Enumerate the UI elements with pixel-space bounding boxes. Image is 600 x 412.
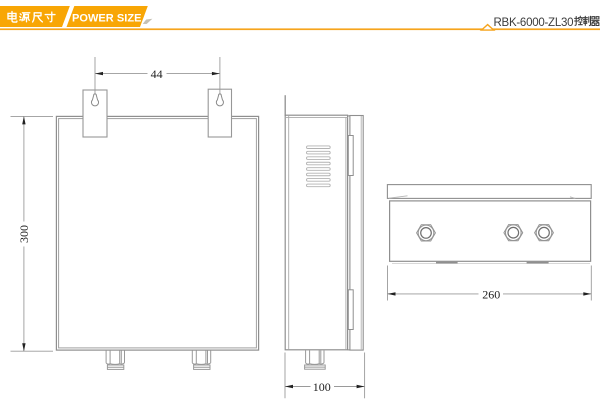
svg-text:44: 44 — [151, 67, 163, 81]
svg-text:300: 300 — [17, 225, 31, 243]
svg-text:RBK-6000-ZL30: RBK-6000-ZL30 — [494, 17, 574, 29]
svg-text:260: 260 — [482, 287, 500, 301]
svg-text:100: 100 — [313, 380, 331, 394]
svg-text:POWER SIZE: POWER SIZE — [72, 12, 142, 24]
